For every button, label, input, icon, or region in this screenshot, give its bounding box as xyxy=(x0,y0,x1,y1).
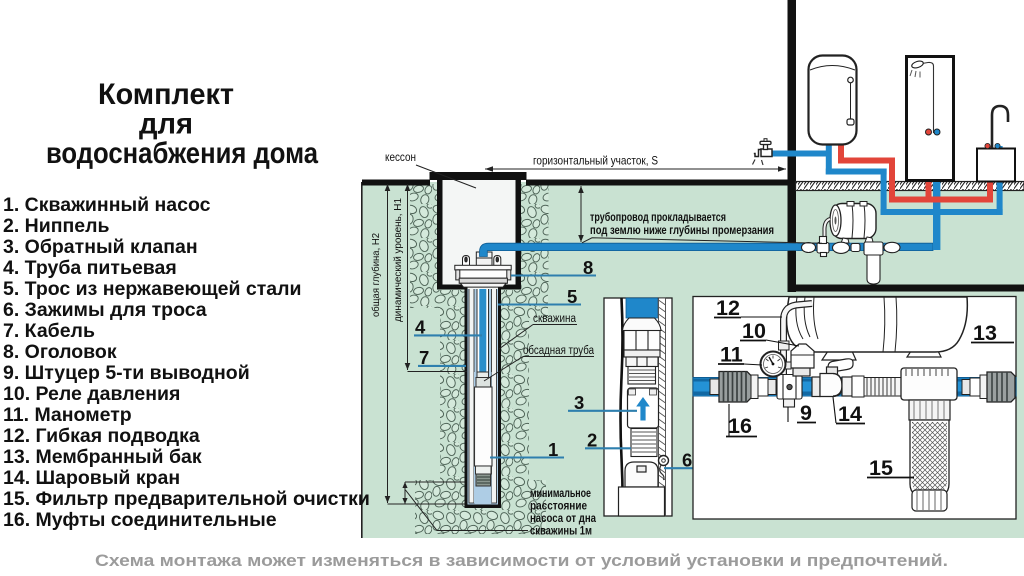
svg-text:15: 15 xyxy=(869,456,893,480)
svg-text:6. Зажимы для троса: 6. Зажимы для троса xyxy=(3,299,207,321)
svg-text:3. Обратный клапан: 3. Обратный клапан xyxy=(3,236,198,258)
svg-text:кессон: кессон xyxy=(385,152,416,164)
svg-text:скважина: скважина xyxy=(533,313,577,325)
svg-text:14: 14 xyxy=(838,402,862,426)
svg-text:7. Кабель: 7. Кабель xyxy=(3,320,95,342)
svg-text:насоса от дна: насоса от дна xyxy=(530,513,596,525)
svg-text:трубопровод прокладывается: трубопровод прокладывается xyxy=(590,210,726,224)
svg-text:8. Оголовок: 8. Оголовок xyxy=(3,341,117,363)
svg-text:расстояние: расстояние xyxy=(530,501,587,513)
svg-text:16. Муфты соединительные: 16. Муфты соединительные xyxy=(3,509,277,531)
svg-text:12. Гибкая подводка: 12. Гибкая подводка xyxy=(3,425,200,447)
svg-text:скважины 1м: скважины 1м xyxy=(530,526,592,538)
svg-text:обсадная труба: обсадная труба xyxy=(523,345,595,357)
svg-text:10. Реле давления: 10. Реле давления xyxy=(3,383,180,405)
svg-text:15. Фильтр предварительной очи: 15. Фильтр предварительной очистки xyxy=(3,488,370,510)
svg-text:Комплект: Комплект xyxy=(98,78,234,111)
svg-text:водоснабжения дома: водоснабжения дома xyxy=(46,137,318,170)
svg-text:5. Трос из нержавеющей стали: 5. Трос из нержавеющей стали xyxy=(3,278,302,300)
svg-text:динамический уровень, Н1: динамический уровень, Н1 xyxy=(392,198,404,322)
svg-text:общая глубина, Н2: общая глубина, Н2 xyxy=(370,233,382,317)
svg-text:14. Шаровый кран: 14. Шаровый кран xyxy=(3,467,180,489)
svg-text:11. Манометр: 11. Манометр xyxy=(3,404,132,426)
svg-text:горизонтальный участок, S: горизонтальный участок, S xyxy=(533,154,658,168)
svg-text:11: 11 xyxy=(720,343,743,367)
svg-text:9: 9 xyxy=(800,401,812,425)
svg-text:минимальное: минимальное xyxy=(530,488,591,500)
svg-text:Схема монтажа может изменяться: Схема монтажа может изменяться в зависим… xyxy=(95,551,948,570)
svg-text:13. Мембранный бак: 13. Мембранный бак xyxy=(3,446,202,468)
svg-text:4. Труба питьевая: 4. Труба питьевая xyxy=(3,257,177,279)
svg-text:9. Штуцер 5-ти выводной: 9. Штуцер 5-ти выводной xyxy=(3,362,250,384)
svg-text:2. Ниппель: 2. Ниппель xyxy=(3,215,110,237)
svg-text:10: 10 xyxy=(742,319,766,343)
svg-text:1. Скважинный насос: 1. Скважинный насос xyxy=(3,194,211,216)
svg-text:16: 16 xyxy=(728,414,752,438)
svg-text:13: 13 xyxy=(973,321,997,345)
svg-text:12: 12 xyxy=(716,296,740,320)
svg-text:под землю ниже глубины про: под землю ниже глубины промерзания xyxy=(590,223,774,237)
svg-text:для: для xyxy=(139,108,193,141)
